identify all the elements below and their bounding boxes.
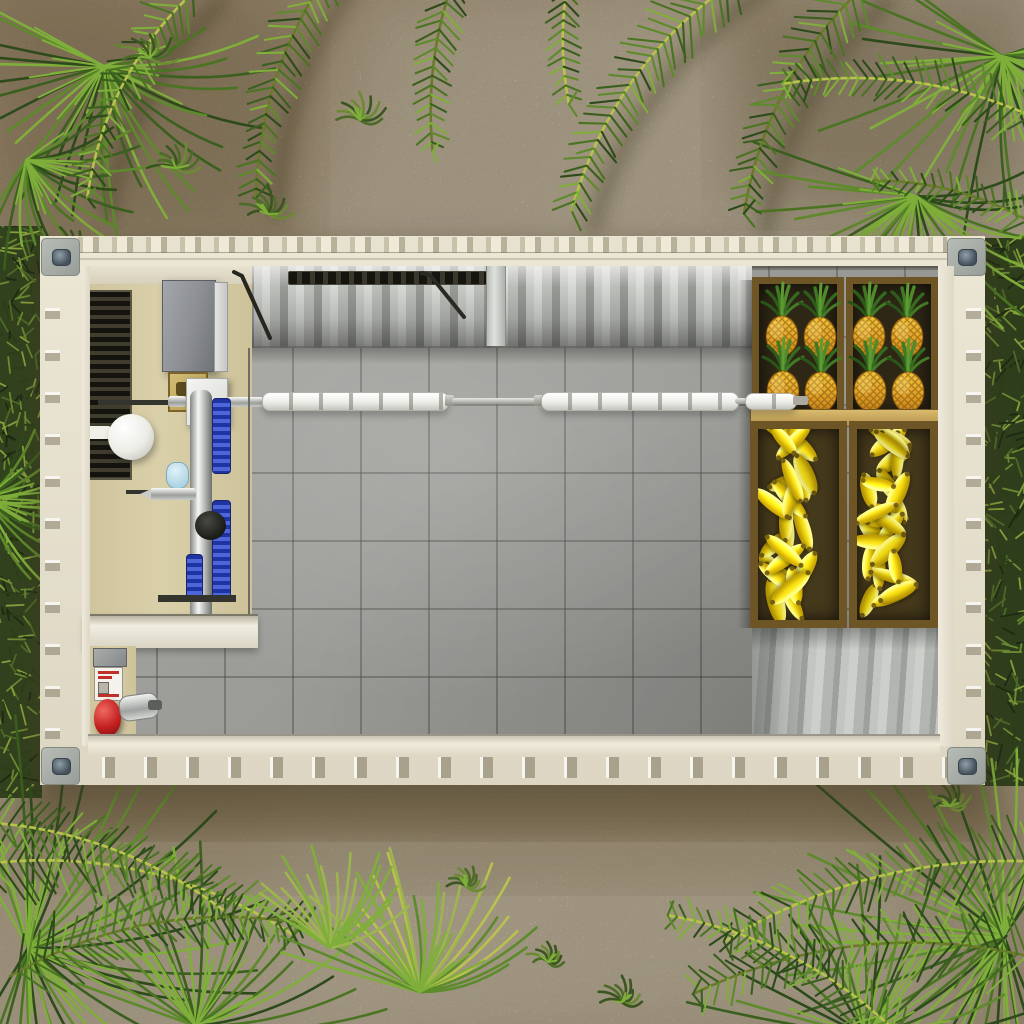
light-bar-rod bbox=[452, 398, 538, 404]
banana-crate-left bbox=[750, 421, 847, 628]
light-bar-segment-2 bbox=[541, 392, 739, 411]
interior-right-edge bbox=[938, 266, 954, 746]
scene-image: Aerial top-down view of an open-roof whi… bbox=[0, 0, 1024, 1024]
light-bar-nozzle bbox=[793, 396, 808, 405]
end-door-corrugation bbox=[752, 628, 938, 738]
light-bar-segment-3 bbox=[745, 393, 797, 410]
banana-crate-right bbox=[849, 421, 938, 628]
interior-left-edge bbox=[82, 266, 90, 746]
light-bar-segment-1 bbox=[262, 392, 449, 411]
interior-bottom-sill bbox=[88, 734, 940, 756]
